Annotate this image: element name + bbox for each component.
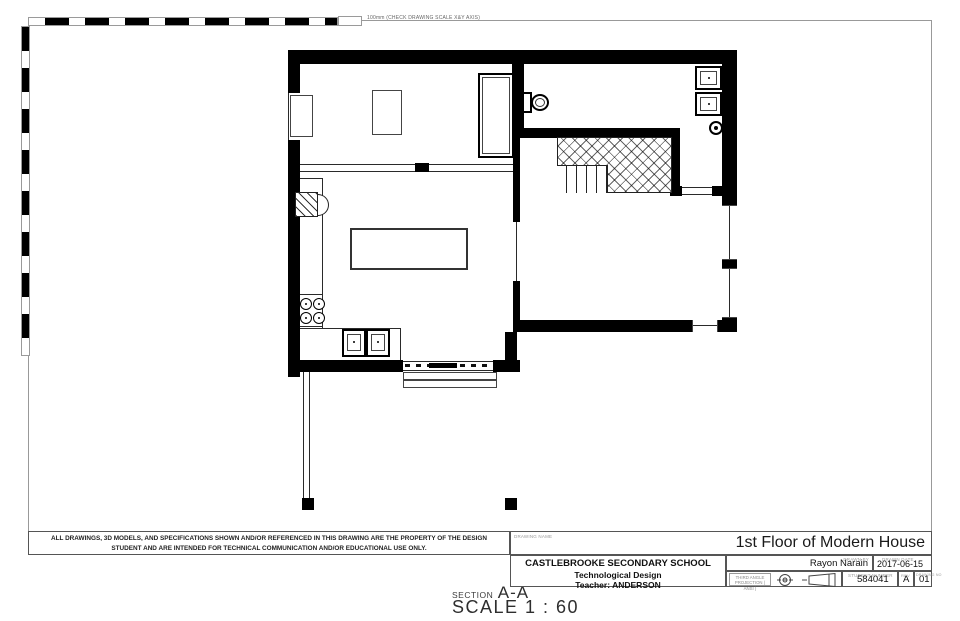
- stove-line-top: [300, 294, 323, 295]
- shower-inner: [482, 77, 510, 154]
- floor-drain-dot: [714, 126, 718, 130]
- counter-bottom-end: [400, 328, 401, 360]
- counter-cap-line: [300, 178, 322, 179]
- vanity-sink-2-dot: [708, 103, 710, 105]
- glass-line-right-2: [729, 269, 730, 317]
- ext-door-line-top: [682, 187, 712, 188]
- wall-ext-bottom-right: [712, 186, 737, 196]
- furniture-wardrobe: [372, 90, 402, 135]
- door-jamb-bottom: [513, 281, 520, 285]
- window-left-edge: [288, 93, 289, 140]
- rev-cell: REV A: [898, 571, 914, 587]
- wall-top: [288, 50, 737, 64]
- deck-post-left: [302, 498, 314, 510]
- patio-door-panel: [429, 363, 457, 368]
- refrigerator: [295, 192, 318, 217]
- ext-door-line-bottom: [682, 194, 712, 195]
- wall-left-upper: [288, 50, 300, 93]
- stove-dot-3: [305, 317, 307, 319]
- wall-living-bottom-left: [513, 320, 692, 332]
- drawing-name-value: 1st Floor of Modern House: [736, 534, 925, 552]
- kitchen-sink-1-dot: [353, 341, 355, 343]
- pocket-door-handle: [415, 163, 429, 172]
- projection-cell: THIRD ANGLE PROJECTION ( ANSI ): [726, 571, 842, 587]
- partition-line-top: [300, 164, 513, 165]
- deck-edge-line-1: [303, 372, 304, 498]
- student-number-cell: STUDENT NUMBER 584041: [842, 571, 898, 587]
- drawn-by-cell: DRAWN BY Rayon Narain: [726, 555, 873, 571]
- school-cell: CASTLEBROOKE SECONDARY SCHOOL Technologi…: [510, 555, 726, 587]
- view-scale-label: SCALE 1 : 60: [452, 597, 579, 618]
- wall-right-lower: [722, 318, 737, 332]
- opening-glass-line: [516, 222, 517, 281]
- teacher-name: Teacher: ANDERSON: [511, 580, 725, 590]
- drawing-no-cell: DRAWING NO 01: [914, 571, 932, 587]
- patio-step-2: [403, 380, 497, 388]
- projection-label: THIRD ANGLE PROJECTION ( ANSI ): [729, 573, 771, 586]
- third-angle-projection-icon: [775, 572, 841, 588]
- wall-dining-upper: [513, 138, 520, 218]
- drawn-date-cell: DRAWN DATE 2017-06-15: [873, 555, 932, 571]
- kitchen-island: [350, 228, 468, 270]
- wall-step-connector: [505, 332, 517, 364]
- school-name: CASTLEBROOKE SECONDARY SCHOOL: [511, 559, 725, 570]
- drawing-name-label: DRAWING NAME: [514, 534, 552, 539]
- rev-value: A: [903, 574, 909, 585]
- kitchen-sink-2-dot: [377, 341, 379, 343]
- patio-door-line-top: [403, 361, 493, 362]
- course-name: Technological Design: [511, 570, 725, 580]
- wall-right-upper: [722, 50, 737, 205]
- drawing-sheet: 100mm (CHECK DRAWING SCALE X&Y AXIS) SEC…: [0, 0, 960, 621]
- floor-plan-view: [0, 0, 960, 621]
- disclaimer-box: ALL DRAWINGS, 3D MODELS, AND SPECIFICATI…: [28, 531, 510, 555]
- stair-treads: [557, 165, 608, 193]
- stove-line-bottom: [300, 326, 323, 327]
- partition-line-bottom: [300, 171, 513, 172]
- toilet-bowl-inner: [535, 98, 545, 107]
- glass-line-right-1: [729, 206, 730, 259]
- window-bottom: [692, 320, 718, 332]
- glass-line-bottom: [693, 325, 717, 326]
- deck-post-right: [505, 498, 517, 510]
- disclaimer-text: ALL DRAWINGS, 3D MODELS, AND SPECIFICATI…: [29, 532, 509, 557]
- student-number-value: 584041: [857, 574, 889, 585]
- vanity-sink-1-dot: [708, 77, 710, 79]
- wall-kitchen-bottom: [288, 360, 403, 372]
- patio-step-1: [403, 372, 497, 380]
- stove-dot-1: [305, 303, 307, 305]
- wall-dining-lower: [513, 285, 520, 320]
- drawn-date-value: 2017-06-15: [877, 559, 923, 569]
- drawn-by-value: Rayon Narain: [810, 558, 868, 569]
- deck-edge-line-2: [309, 372, 310, 498]
- drawing-name-cell: DRAWING NAME 1st Floor of Modern House: [510, 531, 932, 555]
- patio-door-line-bottom: [403, 370, 493, 371]
- stove-dot-4: [318, 317, 320, 319]
- wall-right-mullion: [722, 260, 737, 268]
- stove-dot-2: [318, 303, 320, 305]
- drawing-no-value: 01: [919, 574, 930, 585]
- refrigerator-door-arc: [318, 194, 329, 216]
- window-left-sill: [290, 95, 313, 137]
- wall-left-lower: [288, 140, 300, 377]
